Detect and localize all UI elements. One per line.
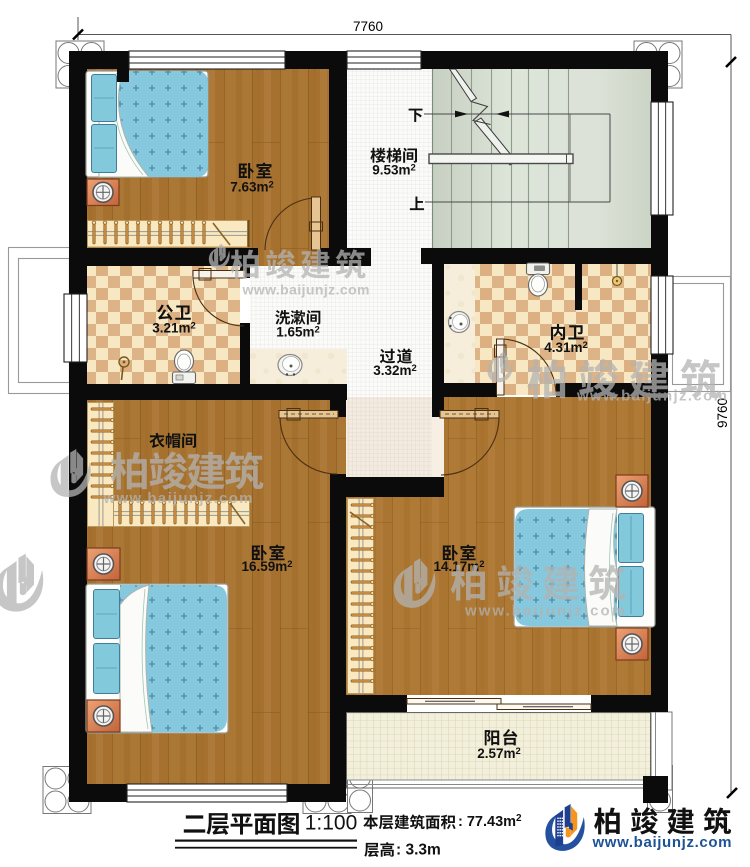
svg-text:3.32m2: 3.32m2 — [373, 363, 417, 378]
svg-text:: 3.3m: : 3.3m — [396, 842, 441, 859]
svg-text:7760: 7760 — [353, 19, 383, 34]
svg-text:www.baijunjz.com: www.baijunjz.com — [242, 281, 370, 297]
svg-text:www.baijunjz.com: www.baijunjz.com — [103, 490, 253, 507]
svg-text:7.63m2: 7.63m2 — [230, 179, 274, 194]
svg-text:2.57m2: 2.57m2 — [477, 746, 521, 761]
svg-text:: 77.43m2: : 77.43m2 — [458, 813, 522, 830]
svg-text:4.31m2: 4.31m2 — [544, 340, 588, 355]
svg-text:16.59m2: 16.59m2 — [241, 559, 292, 574]
svg-text:www.baijunjz.com: www.baijunjz.com — [592, 834, 732, 851]
svg-text:9.53m2: 9.53m2 — [372, 162, 416, 177]
svg-text:1:100: 1:100 — [305, 812, 358, 835]
svg-text:www.baijunjz.com: www.baijunjz.com — [576, 387, 727, 404]
svg-text:1.65m2: 1.65m2 — [276, 324, 320, 339]
svg-text:3.21m2: 3.21m2 — [152, 320, 196, 335]
